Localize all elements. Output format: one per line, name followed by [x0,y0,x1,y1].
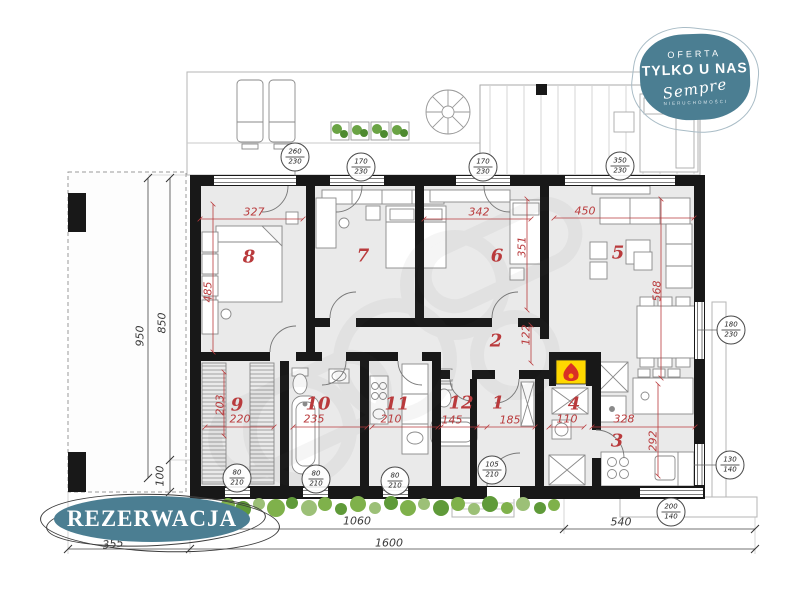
opening-height: 230 [476,168,489,176]
opening-badge-200x140: 200140 [657,498,686,527]
reservation-ellipse: REZERWACJA [54,496,250,542]
spiral-ornament [426,90,470,134]
offer-line2: TYLKO U NAS [642,59,748,79]
opening-width: 80 [230,470,245,479]
opening-height: 210 [485,471,498,479]
opening-height: 210 [309,480,322,488]
opening-width: 180 [721,322,740,331]
opening-height: 140 [723,466,736,474]
opening-height: 230 [724,331,737,339]
opening-badge-170x230: 170230 [347,153,376,182]
opening-width: 350 [610,158,629,167]
opening-badge-80x210: 80210 [381,467,410,496]
offer-line1: OFERTA [667,48,721,60]
opening-width: 260 [285,149,304,158]
reservation-badge: REZERWACJA [40,488,280,560]
opening-height: 230 [613,167,626,175]
opening-width: 200 [661,504,680,513]
opening-width: 80 [388,473,403,482]
opening-badge-180x230: 180230 [717,316,746,345]
offer-badge-blob: OFERTA TYLKO U NAS Sempre NIERUCHOMOŚCI [639,32,752,122]
carport [68,172,186,492]
opening-badge-105x210: 105210 [478,456,507,485]
opening-badge-130x140: 130140 [716,451,745,480]
floor-plan-page: 1234567891011123274853423514505681222032… [0,0,800,593]
opening-badge-350x230: 350230 [606,152,635,181]
opening-height: 210 [388,482,401,490]
opening-badge-260x230: 260230 [281,143,310,172]
opening-height: 140 [664,513,677,521]
opening-badge-170x230: 170230 [469,153,498,182]
opening-height: 230 [354,168,367,176]
opening-width: 130 [720,457,739,466]
opening-width: 105 [482,462,501,471]
reservation-label: REZERWACJA [67,506,237,532]
opening-width: 80 [309,471,324,480]
opening-badge-80x210: 80210 [302,465,331,494]
opening-height: 210 [230,479,243,487]
fireplace [556,360,586,384]
opening-height: 230 [288,158,301,166]
offer-badge: OFERTA TYLKO U NAS Sempre NIERUCHOMOŚCI [628,26,762,136]
opening-width: 170 [473,159,492,168]
opening-width: 170 [351,159,370,168]
